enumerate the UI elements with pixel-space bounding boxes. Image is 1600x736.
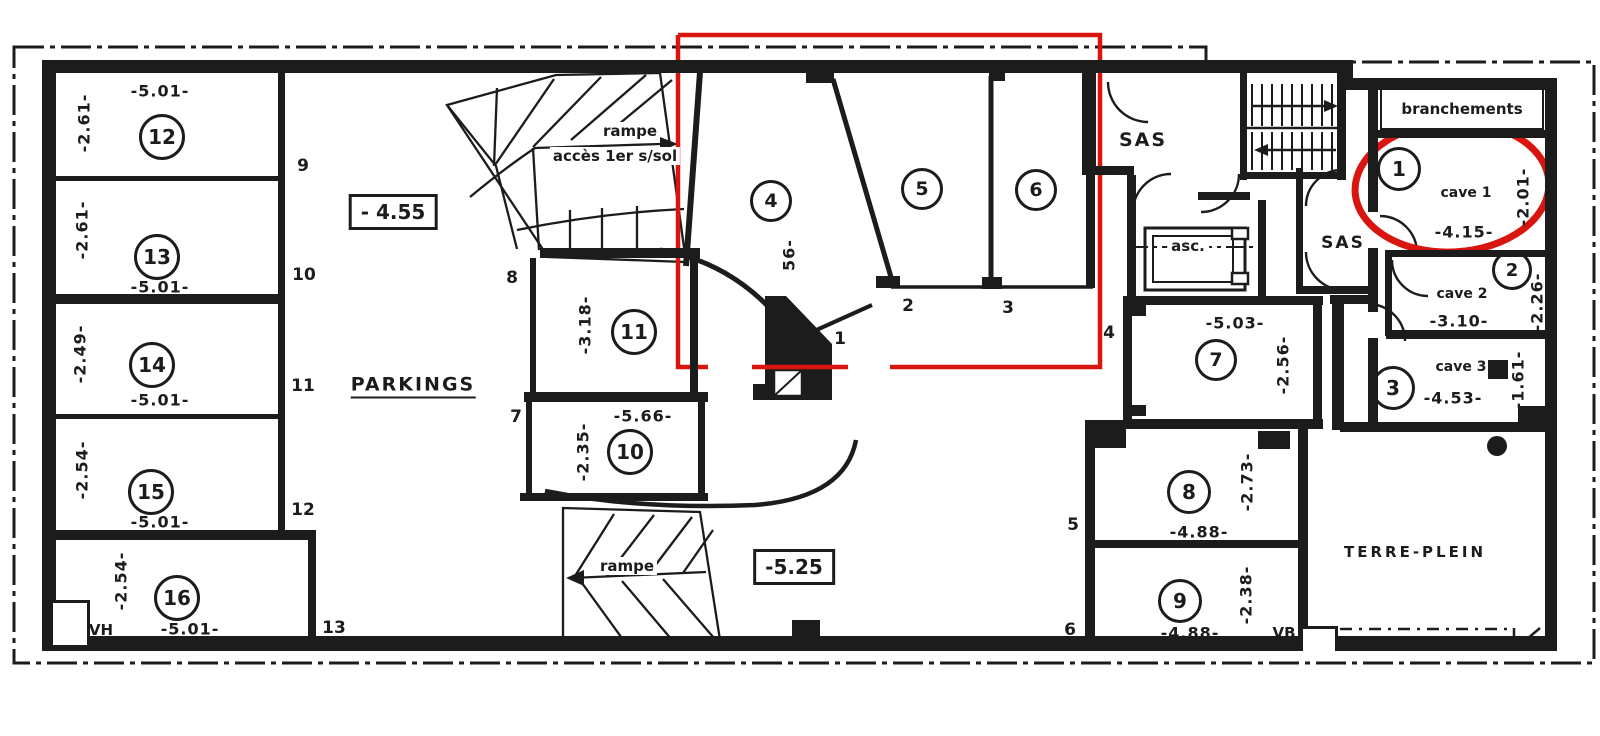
p4-partial-dim: 56- bbox=[780, 239, 799, 271]
p8-pillar-left bbox=[1092, 429, 1126, 448]
cave3-width: -4.53- bbox=[1424, 389, 1483, 408]
p16-width: -5.01- bbox=[161, 620, 220, 639]
p7-top-wall bbox=[1123, 296, 1323, 305]
column-dot bbox=[1487, 436, 1507, 456]
p6-number-badge: 6 bbox=[1015, 169, 1057, 211]
cave2-left-wall bbox=[1385, 250, 1392, 336]
upper-ramp-label-line1: rampe bbox=[600, 122, 660, 140]
divider-12-13 bbox=[56, 176, 278, 181]
parkings-area-label: PARKINGS bbox=[351, 374, 476, 399]
marker-1: 1 bbox=[834, 329, 846, 349]
p10-left-wall bbox=[526, 402, 532, 496]
level-lower-value: -5.25 bbox=[765, 555, 823, 579]
stair-right-wall bbox=[1337, 70, 1346, 180]
cave3-corner-block bbox=[1518, 406, 1546, 430]
p45-top-tab bbox=[806, 70, 834, 83]
p7-corner-tab-bottom bbox=[1132, 405, 1146, 416]
vh-vent-label: VH bbox=[89, 621, 113, 639]
marker-11: 11 bbox=[291, 376, 315, 396]
divider-15-16 bbox=[42, 530, 316, 540]
p15-width: -5.01- bbox=[131, 513, 190, 532]
sas-top-label: SAS bbox=[1119, 129, 1167, 151]
level-box-upper: - 4.55 bbox=[349, 194, 438, 230]
p56-top-tab bbox=[989, 70, 1005, 81]
p14-depth: -2.49- bbox=[71, 325, 90, 384]
cave3-number-badge: 3 bbox=[1371, 366, 1415, 410]
outer-wall-right bbox=[1545, 78, 1557, 651]
p11-number-badge: 11 bbox=[611, 309, 657, 355]
p10-number-badge: 10 bbox=[607, 429, 653, 475]
upper-ramp-label-line2: accès 1er s/sol bbox=[550, 147, 680, 165]
door-arc-sas-top bbox=[1108, 82, 1148, 122]
cave2-name: cave 2 bbox=[1437, 286, 1488, 302]
level-upper-value: - 4.55 bbox=[361, 200, 426, 224]
p13-width: -5.01- bbox=[131, 278, 190, 297]
cave3-name: cave 3 bbox=[1436, 359, 1487, 375]
staircase bbox=[1246, 84, 1338, 170]
marker-9: 9 bbox=[297, 156, 309, 176]
terre-plein-notch bbox=[1303, 626, 1338, 651]
cave2-number-badge: 2 bbox=[1492, 250, 1532, 290]
sas-top-bottom-wall bbox=[1082, 166, 1134, 175]
vh-vent-box bbox=[50, 600, 90, 648]
cave1-number-badge: 1 bbox=[1377, 147, 1421, 191]
p8-top-wall bbox=[1085, 420, 1323, 429]
p11-depth: -3.18- bbox=[576, 296, 595, 355]
p8-depth: -2.73- bbox=[1238, 453, 1257, 512]
cave2-depth: -2.26- bbox=[1528, 273, 1547, 332]
p14-number-badge: 14 bbox=[129, 342, 175, 388]
marker-6: 6 bbox=[1064, 620, 1076, 640]
lobby-right-wall bbox=[1258, 200, 1266, 298]
cave1-width: -4.15- bbox=[1435, 223, 1494, 242]
cave2-width: -3.10- bbox=[1430, 312, 1489, 331]
p12-depth: -2.61- bbox=[75, 94, 94, 153]
p13-depth: -2.61- bbox=[73, 201, 92, 260]
marker-10: 10 bbox=[292, 265, 316, 285]
elevator-label: asc. bbox=[1167, 237, 1209, 255]
marker-2: 2 bbox=[902, 296, 914, 316]
branchements-box: branchements bbox=[1380, 88, 1544, 130]
divider-10-11 bbox=[524, 392, 708, 402]
p11-top-wall bbox=[540, 248, 700, 258]
level-box-lower: -5.25 bbox=[753, 549, 835, 585]
marker-5: 5 bbox=[1067, 515, 1079, 535]
outer-wall-left bbox=[42, 60, 56, 651]
sas-right-label: SAS bbox=[1321, 233, 1365, 253]
sas-right-bottom-wall bbox=[1296, 286, 1378, 294]
vb-vent-label: VB bbox=[1272, 624, 1295, 642]
p7-width: -5.03- bbox=[1206, 314, 1265, 333]
p16-depth: -2.54- bbox=[112, 552, 131, 611]
p10-depth: -2.35- bbox=[574, 423, 593, 482]
door-arc-lobby-left bbox=[1133, 174, 1171, 212]
marker-8: 8 bbox=[506, 268, 518, 288]
p89-right-wall bbox=[1298, 428, 1308, 640]
stair-left-wall bbox=[1240, 70, 1247, 180]
terre-plein-label: TERRE-PLEIN bbox=[1344, 543, 1486, 561]
cave3-left-wall bbox=[1332, 300, 1344, 430]
elevator-top-stub bbox=[1198, 192, 1250, 200]
p12-number-badge: 12 bbox=[139, 114, 185, 160]
p7-corner-tab-top bbox=[1132, 305, 1146, 316]
cave3-bottom-wall bbox=[1340, 422, 1546, 432]
p8-number-badge: 8 bbox=[1167, 470, 1211, 514]
marker-3: 3 bbox=[1002, 298, 1014, 318]
p7-depth: -2.56- bbox=[1274, 336, 1293, 395]
p14-width: -5.01- bbox=[131, 391, 190, 410]
central-core bbox=[753, 296, 872, 400]
p10-width: -5.66- bbox=[614, 407, 673, 426]
p10-right-wall bbox=[698, 398, 705, 496]
marker-7: 7 bbox=[510, 407, 522, 427]
door-arc-cave2 bbox=[1392, 260, 1428, 296]
p16-number-badge: 16 bbox=[154, 575, 200, 621]
sas-top-left-wall bbox=[1082, 70, 1096, 175]
p5-number-badge: 5 bbox=[901, 168, 943, 210]
caves-west-wall-a bbox=[1368, 80, 1378, 212]
p13-number-badge: 13 bbox=[134, 234, 180, 280]
p9-width: -4.88- bbox=[1161, 624, 1220, 643]
p15-number-badge: 15 bbox=[128, 469, 174, 515]
p9-depth: -2.38- bbox=[1237, 566, 1256, 625]
p7-left-wall bbox=[1123, 296, 1132, 427]
p9-number-badge: 9 bbox=[1158, 579, 1202, 623]
p56-foot bbox=[982, 277, 1002, 289]
p8-width: -4.88- bbox=[1170, 523, 1229, 542]
divider-cave2-cave3 bbox=[1386, 330, 1546, 339]
p11-left-wall bbox=[530, 258, 536, 396]
marker-12: 12 bbox=[291, 500, 315, 520]
cave1-depth: -2.01- bbox=[1514, 168, 1533, 227]
p11-right-wall bbox=[690, 250, 698, 396]
corridor-left-wall bbox=[1127, 175, 1136, 299]
upper-ramp-hatching bbox=[447, 73, 686, 262]
p16-right-wall bbox=[308, 536, 316, 641]
basement-floor-plan: - 4.55 -5.25 branchements PARKINGS rampe… bbox=[0, 0, 1600, 736]
p15-depth: -2.54- bbox=[73, 441, 92, 500]
p45-foot bbox=[876, 276, 900, 288]
p8-pillar-right bbox=[1258, 431, 1290, 449]
lower-ramp-label: rampe bbox=[597, 557, 657, 575]
branchements-label: branchements bbox=[1401, 100, 1522, 118]
bottom-wall-notch bbox=[792, 620, 820, 638]
marker-4: 4 bbox=[1103, 323, 1115, 343]
door-arc-sas-right-bottom bbox=[1306, 252, 1344, 290]
p7-number-badge: 7 bbox=[1195, 339, 1237, 381]
sas-right-left-wall bbox=[1296, 168, 1303, 292]
parking4-5-divider bbox=[833, 79, 893, 284]
cave1-name: cave 1 bbox=[1441, 185, 1492, 201]
parking4-left-wall bbox=[686, 72, 700, 266]
branchements-bottom-wall bbox=[1376, 130, 1546, 138]
cave3-blob bbox=[1488, 360, 1508, 379]
cave3-depth: -1.61- bbox=[1509, 351, 1528, 410]
divider-14-15 bbox=[56, 414, 278, 419]
p7-right-wall bbox=[1313, 299, 1322, 427]
p4-number-badge: 4 bbox=[750, 180, 792, 222]
outer-wall-top bbox=[42, 60, 1353, 73]
stair-bottom-wall bbox=[1242, 172, 1340, 179]
p10-bottom-wall bbox=[520, 493, 708, 501]
p12-width: -5.01- bbox=[131, 82, 190, 101]
p89-left-wall bbox=[1085, 420, 1095, 638]
marker-13: 13 bbox=[322, 618, 346, 638]
